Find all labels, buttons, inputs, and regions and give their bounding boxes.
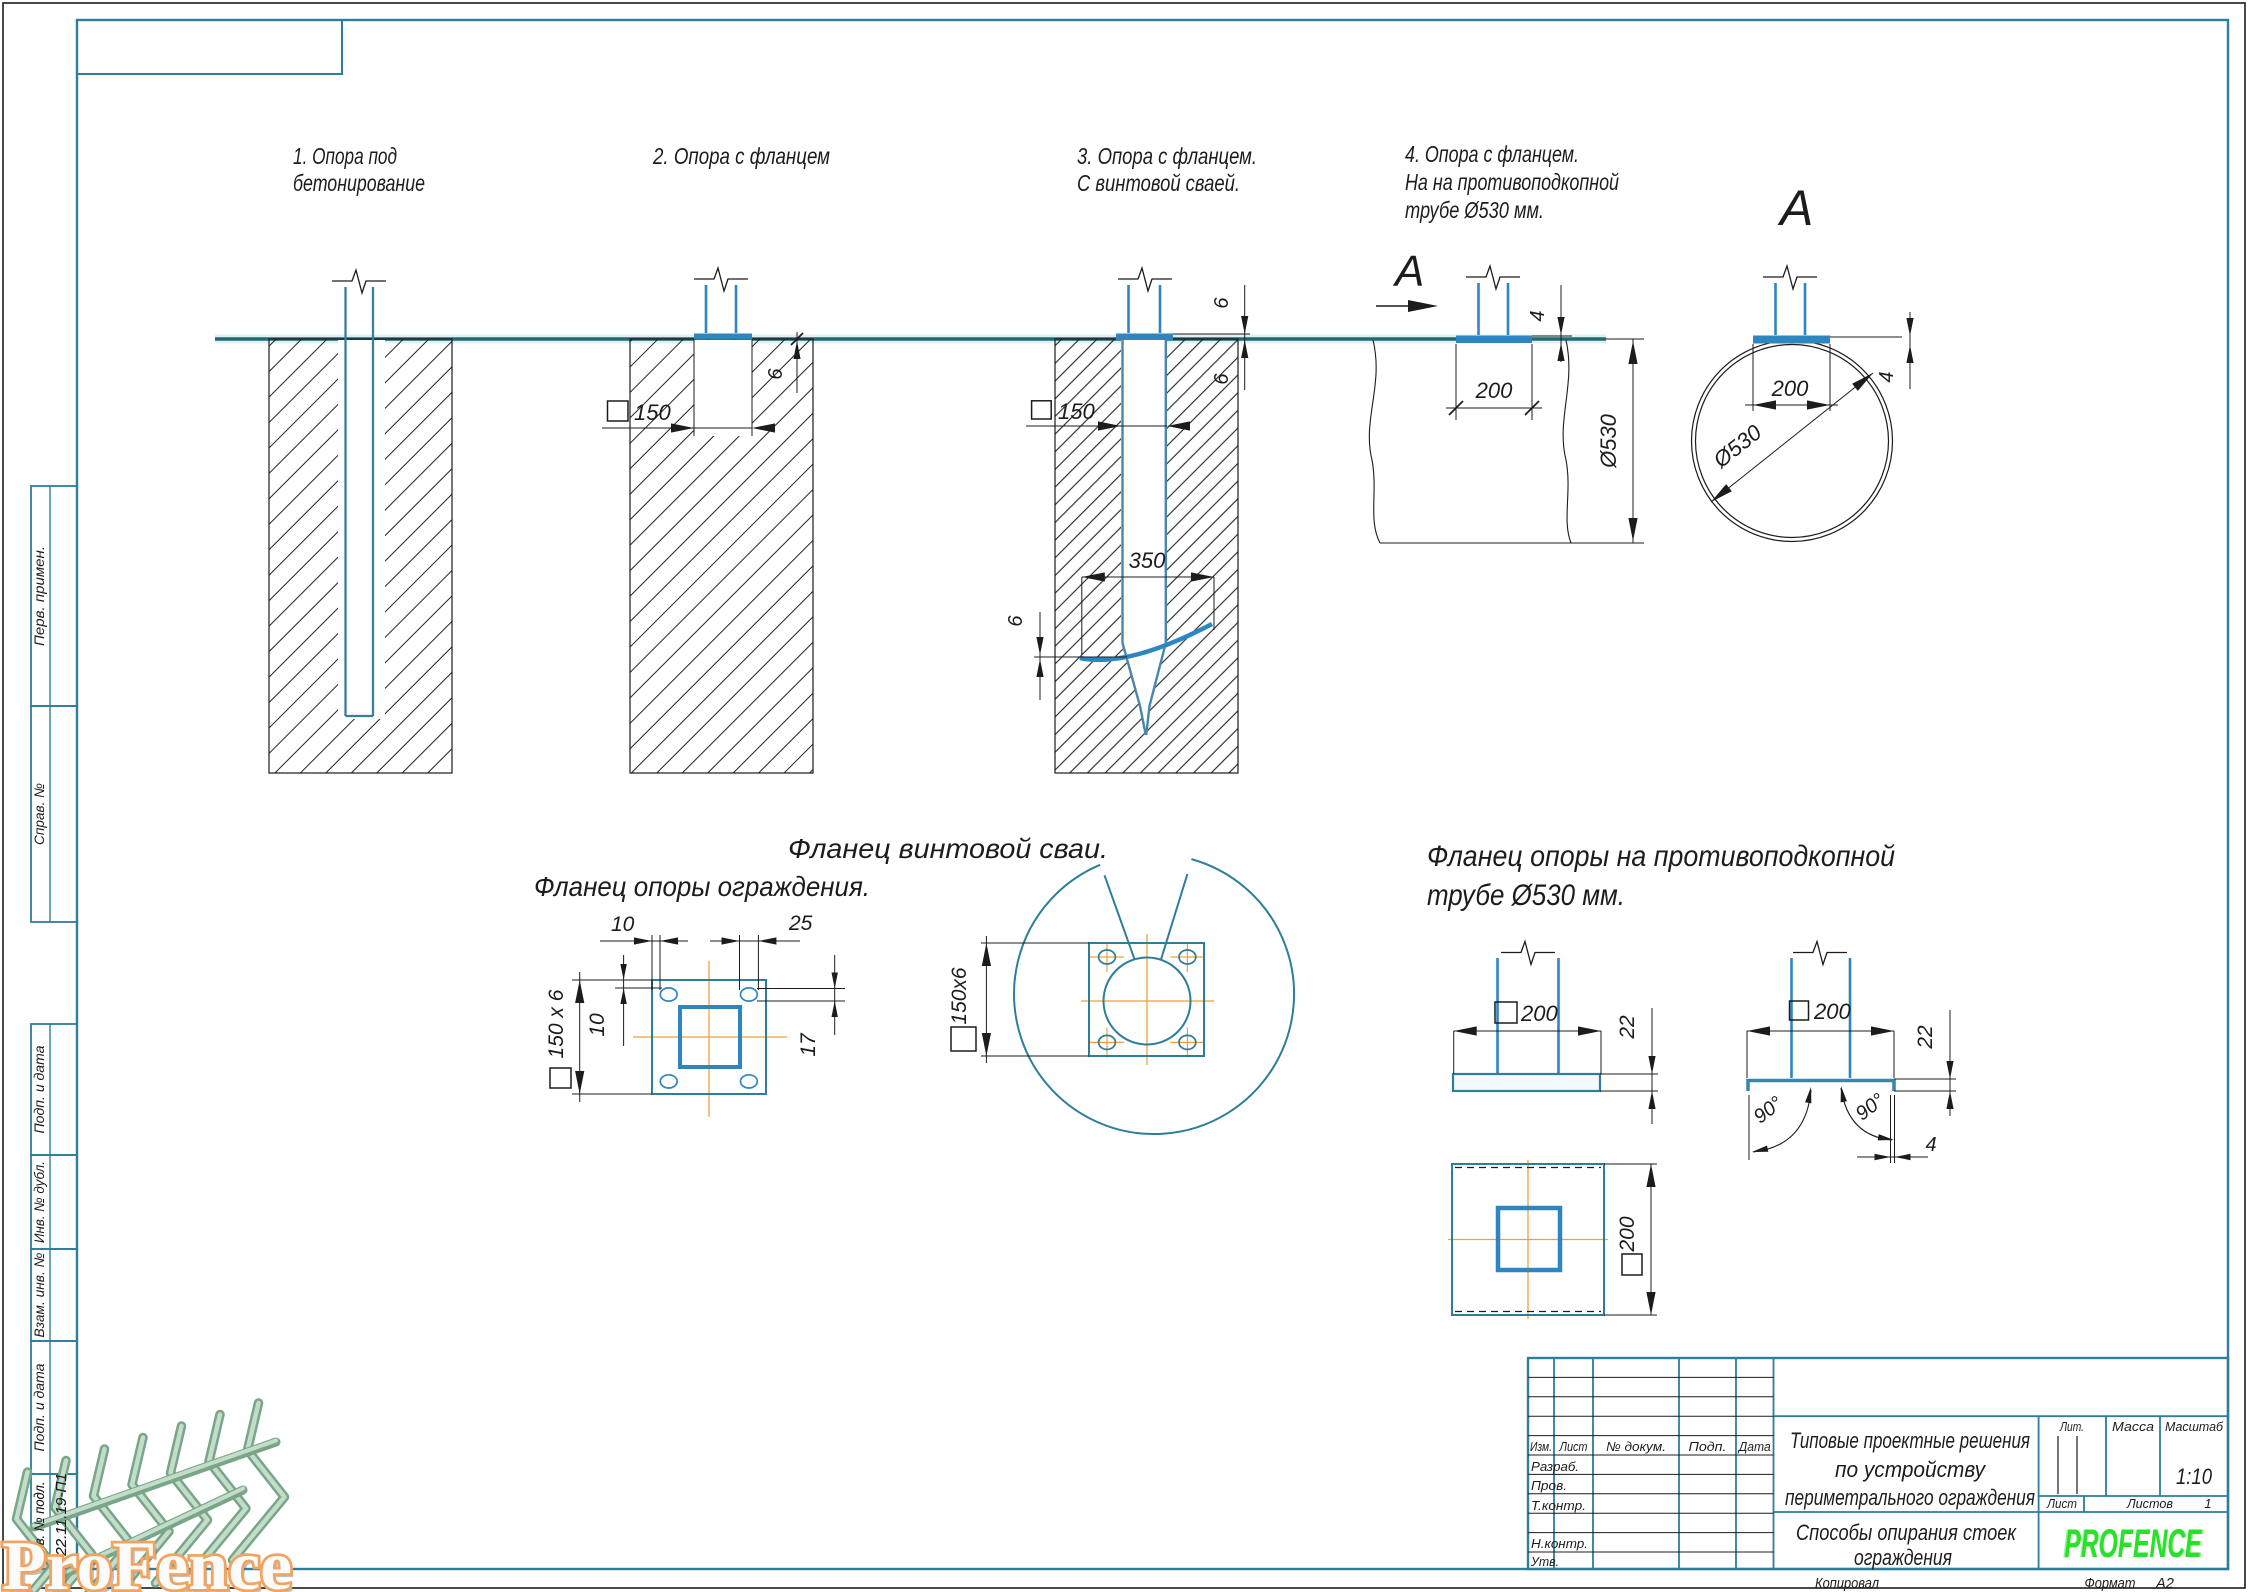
svg-text:4: 4 — [1527, 310, 1549, 321]
svg-text:С винтовой сваей.: С винтовой сваей. — [1077, 170, 1240, 196]
svg-text:Н.контр.: Н.контр. — [1531, 1536, 1588, 1551]
svg-text:Утв.: Утв. — [1530, 1554, 1559, 1569]
svg-text:200: 200 — [1475, 378, 1513, 403]
svg-text:трубе Ø530 мм.: трубе Ø530 мм. — [1427, 879, 1625, 912]
svg-text:150 х 6: 150 х 6 — [545, 989, 568, 1058]
svg-text:22: 22 — [1914, 1025, 1937, 1050]
svg-text:2. Опора с фланцем: 2. Опора с фланцем — [652, 143, 830, 169]
svg-text:Листов: Листов — [2126, 1496, 2173, 1511]
svg-text:6: 6 — [1211, 297, 1233, 309]
svg-text:№ докум.: № докум. — [1606, 1439, 1666, 1454]
svg-text:3. Опора с фланцем.: 3. Опора с фланцем. — [1077, 143, 1257, 169]
svg-text:Типовые проектные решения: Типовые проектные решения — [1790, 1428, 2030, 1453]
svg-text:трубе Ø530 мм.: трубе Ø530 мм. — [1405, 197, 1544, 223]
svg-text:Фланец опоры на противоподкопн: Фланец опоры на противоподкопной — [1427, 840, 1895, 873]
svg-text:периметрального ограждения: периметрального ограждения — [1785, 1485, 2035, 1510]
svg-text:Масса: Масса — [2112, 1419, 2154, 1434]
svg-text:Взам. инв. №: Взам. инв. № — [31, 1253, 47, 1338]
svg-text:Формат: Формат — [2085, 1575, 2136, 1592]
svg-text:4: 4 — [1925, 1134, 1936, 1156]
svg-text:200: 200 — [1771, 376, 1809, 401]
svg-text:Ø530: Ø530 — [1596, 413, 1621, 469]
svg-text:по устройству: по устройству — [1835, 1457, 1987, 1482]
svg-text:1:10: 1:10 — [2176, 1464, 2213, 1489]
svg-text:Лист: Лист — [2046, 1496, 2077, 1511]
svg-text:Масштаб: Масштаб — [2165, 1419, 2224, 1434]
svg-text:25: 25 — [788, 912, 813, 935]
svg-text:200: 200 — [1616, 1216, 1639, 1252]
svg-text:А: А — [1392, 247, 1424, 296]
svg-text:Подп.: Подп. — [1689, 1439, 1727, 1454]
svg-text:Разраб.: Разраб. — [1531, 1459, 1579, 1474]
svg-text:4: 4 — [1876, 371, 1898, 382]
svg-text:Перв. примен.: Перв. примен. — [31, 546, 47, 646]
svg-text:бетонирование: бетонирование — [293, 170, 425, 196]
svg-text:Пров.: Пров. — [1531, 1478, 1567, 1493]
svg-text:150: 150 — [634, 400, 671, 425]
svg-text:10: 10 — [611, 913, 635, 936]
svg-text:4. Опора с фланцем.: 4. Опора с фланцем. — [1405, 141, 1579, 167]
svg-text:Подп. и дата: Подп. и дата — [31, 1045, 47, 1133]
svg-text:350: 350 — [1129, 548, 1166, 573]
svg-text:ProFence: ProFence — [2, 1528, 292, 1592]
svg-text:17: 17 — [797, 1032, 820, 1057]
svg-text:Инв. № дубл.: Инв. № дубл. — [31, 1161, 47, 1243]
svg-text:22: 22 — [1616, 1015, 1639, 1040]
svg-text:А: А — [1777, 180, 1813, 236]
svg-text:150х6: 150х6 — [948, 967, 971, 1025]
svg-text:200: 200 — [1520, 1001, 1558, 1026]
svg-text:Фланец опоры ограждения.: Фланец опоры ограждения. — [534, 871, 870, 902]
svg-text:10: 10 — [586, 1013, 609, 1037]
svg-text:Т.контр.: Т.контр. — [1531, 1498, 1586, 1513]
svg-text:6: 6 — [765, 368, 787, 380]
svg-text:Лист: Лист — [1559, 1439, 1588, 1454]
svg-text:Дата: Дата — [1737, 1439, 1771, 1454]
svg-text:Подп. и дата: Подп. и дата — [31, 1363, 47, 1451]
svg-text:Фланец винтовой сваи.: Фланец винтовой сваи. — [788, 833, 1108, 864]
svg-text:Справ. №: Справ. № — [31, 783, 47, 845]
svg-text:6: 6 — [1211, 373, 1233, 385]
svg-text:PROFENCE: PROFENCE — [2065, 1522, 2203, 1566]
svg-text:Изм.: Изм. — [1530, 1439, 1552, 1454]
svg-text:6: 6 — [1005, 615, 1027, 627]
svg-text:А2: А2 — [2155, 1575, 2175, 1592]
svg-text:Копировал: Копировал — [1815, 1575, 1879, 1592]
svg-text:Способы опирания стоек: Способы опирания стоек — [1796, 1520, 2017, 1545]
svg-text:Лит.: Лит. — [2059, 1419, 2084, 1434]
svg-text:На на противоподкопной: На на противоподкопной — [1405, 169, 1619, 195]
svg-text:ограждения: ограждения — [1854, 1545, 1952, 1570]
svg-text:200: 200 — [1813, 999, 1851, 1024]
svg-text:150: 150 — [1058, 399, 1095, 424]
svg-text:1: 1 — [2204, 1496, 2211, 1511]
svg-text:1. Опора под: 1. Опора под — [293, 143, 397, 169]
